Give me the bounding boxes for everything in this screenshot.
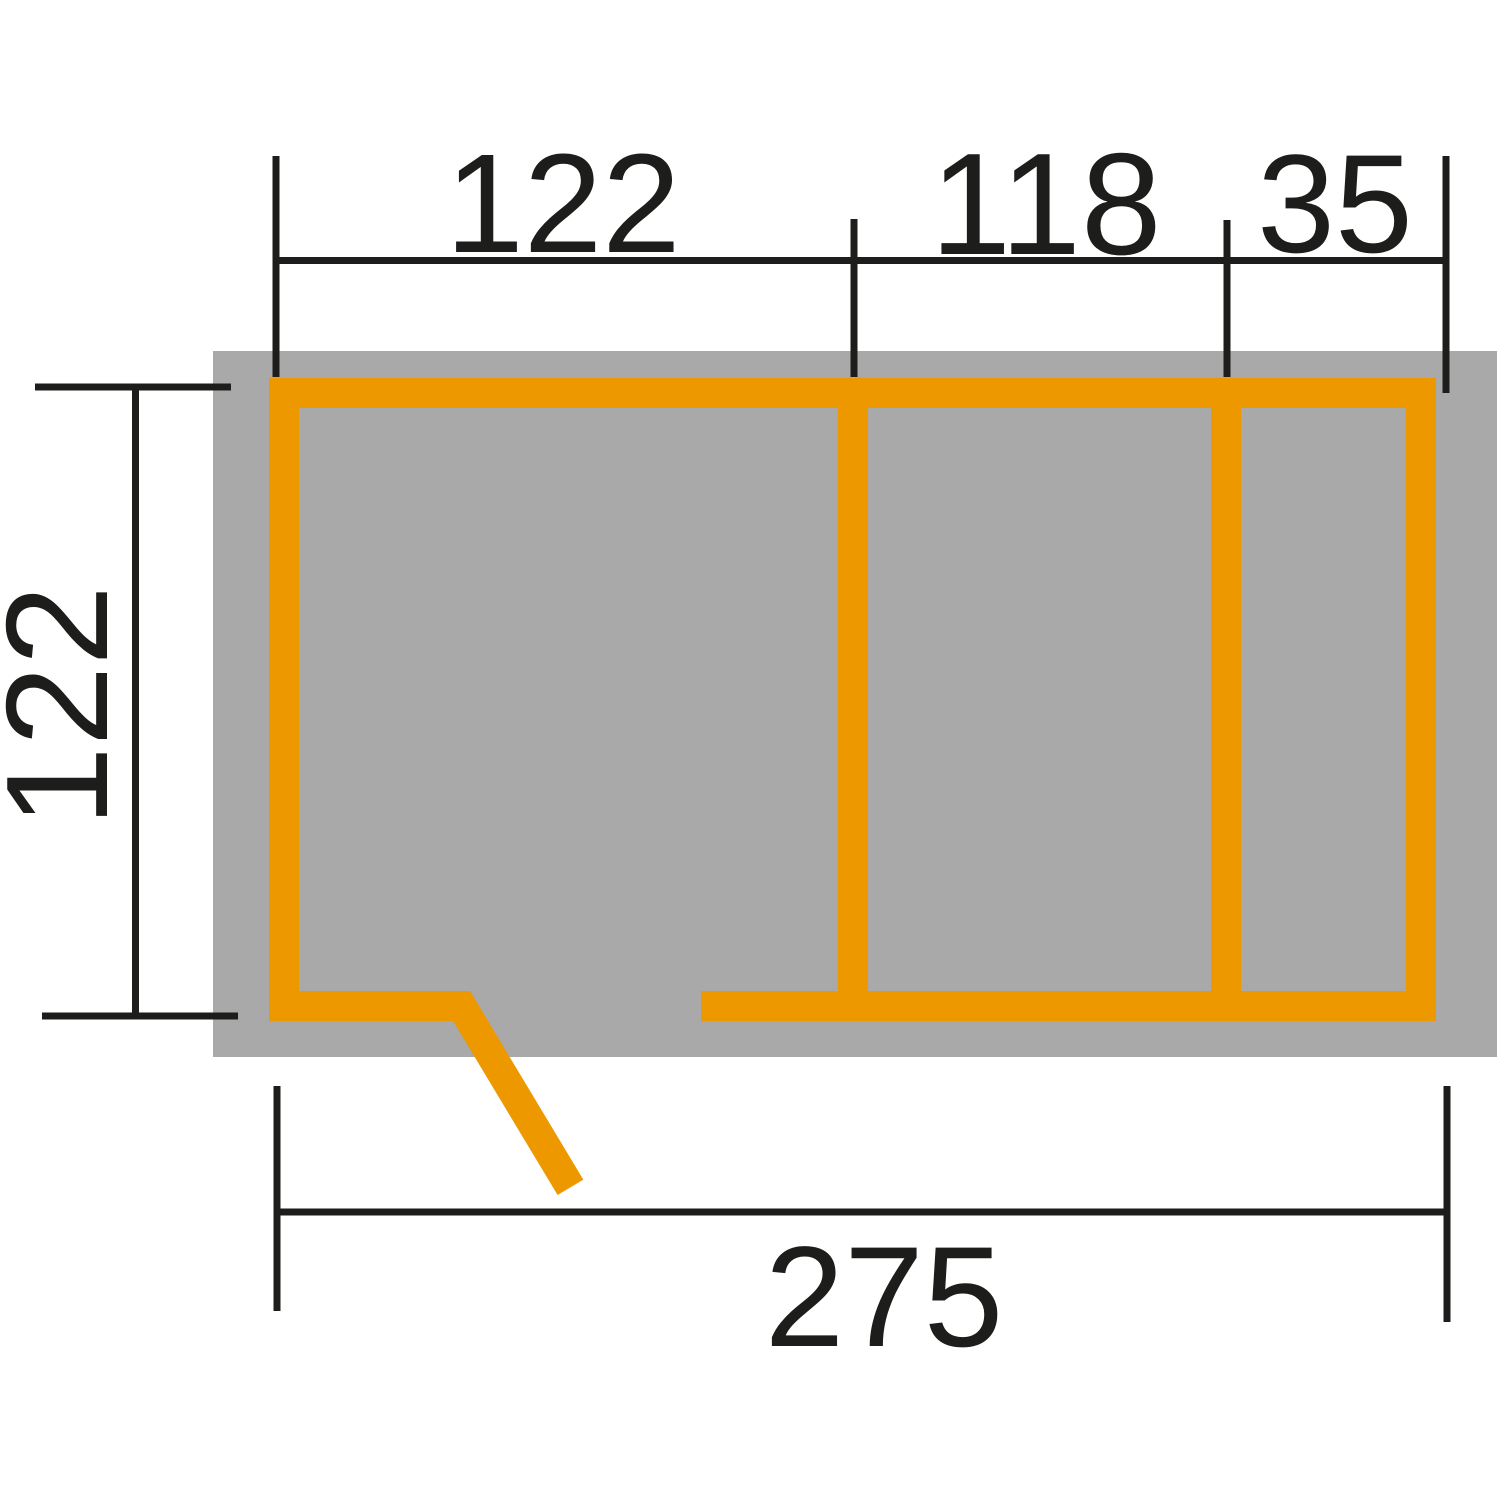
svg-text:35: 35 — [1257, 125, 1413, 282]
svg-text:118: 118 — [930, 123, 1161, 285]
svg-text:122: 122 — [0, 585, 138, 827]
svg-text:275: 275 — [765, 1218, 1004, 1377]
svg-text:122: 122 — [445, 124, 680, 282]
